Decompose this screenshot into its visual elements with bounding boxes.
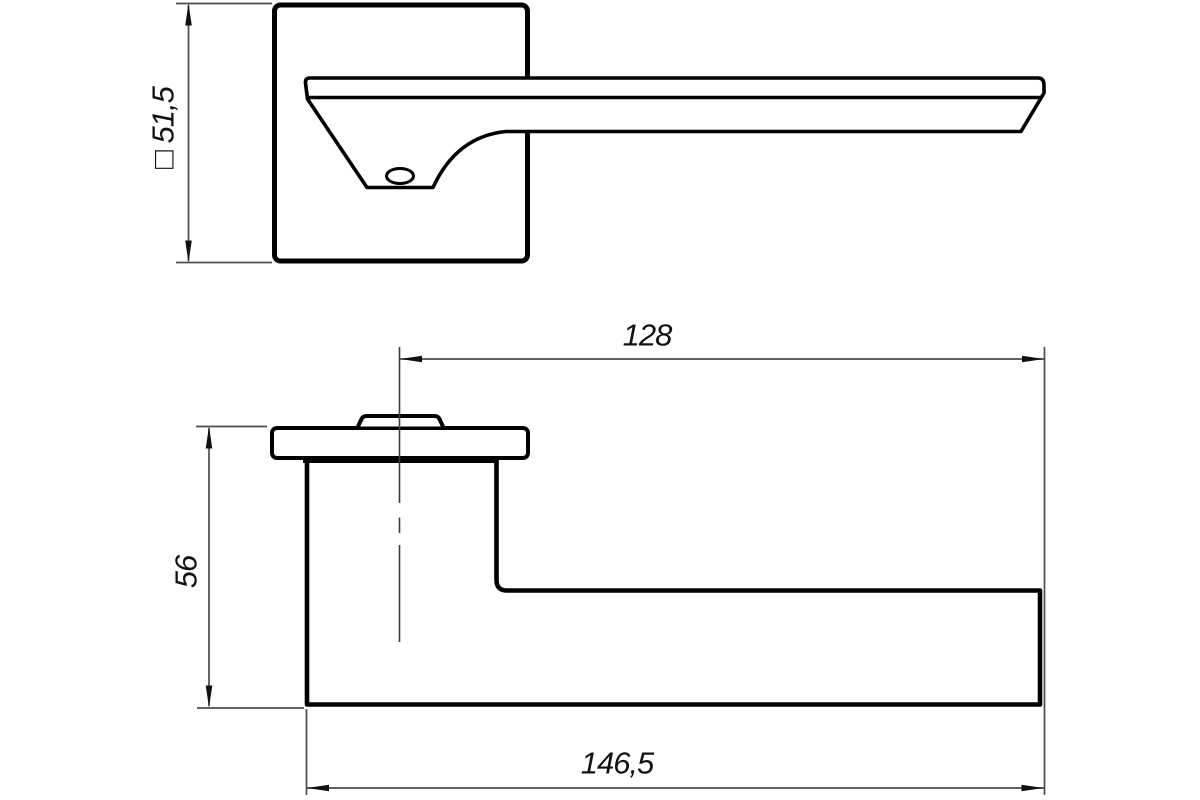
arrowhead-down-icon	[185, 241, 192, 263]
dimension-label-overall-length: 146,5	[581, 748, 654, 779]
front-view	[275, 5, 1045, 261]
arrowhead-up-icon	[185, 4, 192, 26]
dimension-label-handle-depth: 56	[171, 556, 202, 588]
arrowhead-left-icon	[400, 356, 422, 363]
screw-hole	[387, 169, 414, 184]
arrowhead-down-icon	[206, 686, 213, 708]
spindle-cap	[358, 416, 443, 427]
side-view	[272, 347, 1040, 705]
dimension-label-lever-length: 128	[623, 320, 672, 351]
dimension-rosette-size	[176, 4, 272, 263]
arrowhead-left-icon	[307, 785, 329, 792]
dimension-overall-length	[307, 709, 1045, 795]
arrowhead-right-icon	[1022, 785, 1044, 792]
dimension-handle-depth	[196, 427, 304, 709]
lever-outline	[305, 78, 1044, 188]
arrowhead-up-icon	[206, 427, 213, 449]
arrowhead-right-icon	[1022, 356, 1044, 363]
handle-profile	[307, 459, 1040, 705]
dimension-label-rosette-size: □ 51,5	[148, 87, 179, 169]
technical-drawing-page: □ 51,5 56 128 146,5	[0, 0, 1200, 800]
